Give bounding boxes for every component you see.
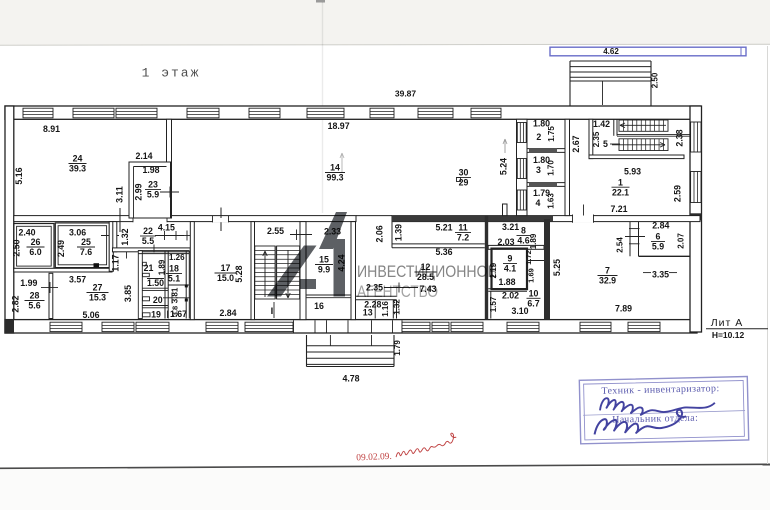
svg-text:7: 7 (605, 266, 610, 276)
svg-text:7.2: 7.2 (457, 233, 469, 243)
svg-text:2.84: 2.84 (219, 308, 236, 318)
svg-text:5.6: 5.6 (28, 301, 40, 311)
svg-text:ИНВЕСТИЦИОННОЕ: ИНВЕСТИЦИОННОЕ (357, 263, 497, 281)
svg-text:2.59: 2.59 (673, 185, 683, 202)
svg-text:15.3: 15.3 (89, 293, 106, 303)
svg-text:19: 19 (151, 309, 161, 319)
svg-text:4.6: 4.6 (517, 236, 529, 246)
svg-text:2.02: 2.02 (502, 291, 519, 301)
svg-text:АГЕНТСТВО: АГЕНТСТВО (357, 283, 438, 301)
svg-text:3.21: 3.21 (502, 222, 519, 232)
svg-text:1.88: 1.88 (498, 277, 515, 287)
svg-text:1: 1 (618, 177, 623, 187)
svg-text:20: 20 (153, 295, 163, 305)
svg-text:8.91: 8.91 (43, 124, 60, 134)
svg-text:2.50: 2.50 (12, 239, 22, 256)
svg-text:24: 24 (73, 154, 83, 164)
svg-text:1.70: 1.70 (547, 160, 556, 176)
svg-text:26: 26 (31, 237, 41, 247)
svg-text:18: 18 (169, 264, 179, 274)
svg-text:5: 5 (603, 139, 608, 149)
svg-text:15.0: 15.0 (217, 273, 234, 283)
svg-text:Лит А: Лит А (711, 317, 744, 329)
svg-text:5.93: 5.93 (624, 166, 641, 176)
svg-text:5.28: 5.28 (234, 265, 244, 282)
svg-text:5.24: 5.24 (499, 158, 509, 175)
svg-text:6.0: 6.0 (29, 247, 41, 257)
svg-text:16: 16 (314, 301, 324, 311)
svg-text:1.75: 1.75 (547, 126, 556, 142)
svg-text:9.9: 9.9 (318, 265, 330, 275)
svg-text:1.39: 1.39 (394, 224, 404, 241)
svg-text:28: 28 (30, 291, 40, 301)
svg-text:5.21: 5.21 (435, 222, 452, 232)
svg-text:11: 11 (458, 223, 467, 233)
svg-text:1.50: 1.50 (147, 278, 164, 288)
svg-text:7.21: 7.21 (610, 204, 627, 214)
svg-text:1.16: 1.16 (381, 301, 390, 317)
svg-text:1.57: 1.57 (489, 296, 498, 312)
svg-text:8: 8 (521, 226, 526, 236)
svg-text:1.32: 1.32 (393, 299, 402, 315)
svg-text:27: 27 (93, 283, 103, 293)
svg-text:15: 15 (319, 255, 329, 265)
svg-text:3.57: 3.57 (69, 275, 86, 285)
svg-text:3.11: 3.11 (115, 186, 125, 203)
svg-text:39.3: 39.3 (69, 164, 86, 174)
svg-text:5.06: 5.06 (82, 310, 99, 320)
svg-text:1.72: 1.72 (524, 250, 533, 265)
svg-text:2.84: 2.84 (652, 220, 669, 230)
svg-text:10: 10 (529, 289, 539, 299)
svg-text:5.36: 5.36 (435, 247, 452, 257)
svg-text:2.06: 2.06 (375, 225, 385, 242)
svg-text:2.54: 2.54 (615, 237, 624, 253)
svg-text:3.06: 3.06 (69, 227, 86, 237)
svg-text:5.25: 5.25 (552, 259, 562, 276)
svg-text:I: I (271, 306, 274, 317)
svg-text:3: 3 (536, 165, 541, 175)
svg-text:2.35: 2.35 (592, 131, 601, 147)
svg-text:3.35: 3.35 (652, 270, 669, 280)
svg-text:2.07: 2.07 (677, 233, 686, 249)
svg-text:2.03: 2.03 (497, 237, 514, 247)
svg-text:2: 2 (536, 132, 541, 142)
svg-text:1.42: 1.42 (593, 119, 610, 129)
svg-text:4: 4 (536, 198, 541, 208)
svg-text:9: 9 (508, 254, 513, 264)
svg-text:5.5: 5.5 (142, 236, 154, 246)
svg-text:2.50: 2.50 (651, 72, 660, 88)
svg-text:6.7: 6.7 (527, 299, 539, 309)
svg-text:99.3: 99.3 (326, 173, 343, 183)
svg-text:2.40: 2.40 (18, 227, 35, 237)
svg-text:22.1: 22.1 (612, 187, 629, 197)
svg-text:7.6: 7.6 (80, 247, 92, 257)
svg-text:4.62: 4.62 (603, 47, 619, 56)
svg-text:1.99: 1.99 (20, 278, 37, 288)
svg-text:H=10.12: H=10.12 (712, 330, 745, 340)
svg-text:1.98: 1.98 (142, 165, 159, 175)
svg-text:2.49: 2.49 (56, 240, 66, 257)
svg-text:1.17: 1.17 (110, 254, 120, 271)
svg-text:1.89: 1.89 (529, 233, 538, 249)
svg-text:5.9: 5.9 (652, 242, 664, 252)
svg-text:Начальник отдела:: Начальник отдела: (612, 413, 698, 426)
svg-text:30: 30 (459, 168, 469, 178)
svg-text:2.14: 2.14 (135, 151, 152, 161)
svg-text:1.32: 1.32 (120, 228, 130, 245)
svg-text:22: 22 (143, 226, 153, 236)
svg-text:1.63: 1.63 (547, 193, 556, 209)
svg-text:13: 13 (363, 308, 373, 318)
svg-text:2.82: 2.82 (10, 295, 20, 312)
svg-text:2.67: 2.67 (571, 135, 581, 152)
svg-text:6: 6 (656, 232, 661, 242)
svg-text:3.85: 3.85 (123, 285, 133, 302)
svg-text:23: 23 (148, 180, 158, 190)
svg-text:1.69: 1.69 (527, 268, 536, 283)
svg-text:7.89: 7.89 (615, 303, 632, 313)
svg-text:1 этаж: 1 этаж (142, 66, 201, 81)
svg-text:1.67: 1.67 (170, 309, 187, 319)
svg-text:1.89: 1.89 (158, 259, 167, 275)
svg-text:17: 17 (221, 263, 231, 273)
svg-text:2.55: 2.55 (267, 226, 284, 236)
svg-text:1.79: 1.79 (393, 340, 402, 356)
svg-text:1.26: 1.26 (169, 253, 185, 262)
svg-text:5.9: 5.9 (147, 190, 159, 200)
svg-text:21: 21 (144, 263, 154, 273)
svg-text:14: 14 (330, 163, 340, 173)
svg-text:5.1: 5.1 (168, 274, 180, 284)
svg-text:39.87: 39.87 (395, 89, 417, 99)
svg-text:4.15: 4.15 (158, 223, 175, 233)
svg-text:4.1: 4.1 (504, 264, 516, 274)
svg-text:18.97: 18.97 (328, 121, 350, 131)
svg-text:25: 25 (81, 237, 91, 247)
svg-text:32.9: 32.9 (599, 276, 616, 286)
svg-text:09.02.09.: 09.02.09. (356, 452, 392, 464)
svg-text:2.38: 2.38 (675, 129, 685, 146)
svg-text:5.16: 5.16 (14, 167, 24, 184)
svg-text:2.99: 2.99 (134, 183, 144, 200)
svg-text:4.78: 4.78 (342, 373, 359, 383)
svg-text:3.10: 3.10 (511, 306, 528, 316)
svg-text:3.81: 3.81 (171, 287, 180, 303)
